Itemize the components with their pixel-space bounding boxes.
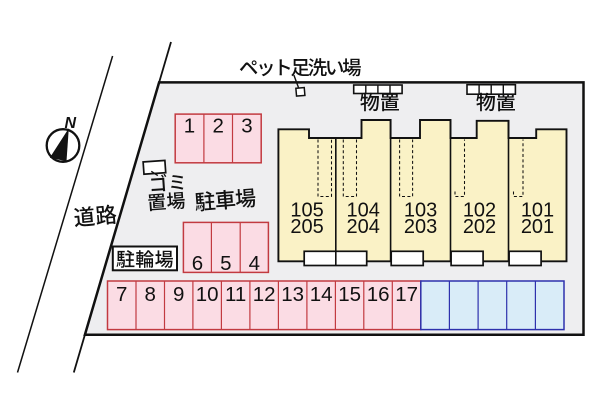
svg-text:14: 14	[310, 283, 333, 306]
svg-text:3: 3	[241, 114, 252, 137]
svg-text:N: N	[65, 115, 77, 132]
svg-text:203: 203	[404, 216, 437, 238]
svg-text:1: 1	[184, 114, 195, 137]
svg-text:201: 201	[521, 216, 554, 238]
svg-text:6: 6	[192, 252, 203, 275]
svg-text:9: 9	[173, 283, 184, 306]
svg-text:204: 204	[347, 216, 380, 238]
svg-text:15: 15	[338, 283, 361, 306]
svg-text:10: 10	[196, 283, 219, 306]
svg-text:5: 5	[220, 252, 231, 275]
svg-text:17: 17	[395, 283, 418, 306]
svg-text:16: 16	[367, 283, 390, 306]
svg-text:8: 8	[144, 283, 155, 306]
svg-text:7: 7	[116, 283, 127, 306]
svg-text:11: 11	[225, 283, 246, 306]
svg-text:205: 205	[290, 216, 323, 238]
svg-text:13: 13	[281, 283, 304, 306]
svg-text:4: 4	[249, 252, 260, 275]
svg-text:12: 12	[253, 283, 276, 306]
svg-text:2: 2	[212, 114, 223, 137]
svg-text:202: 202	[463, 216, 496, 238]
